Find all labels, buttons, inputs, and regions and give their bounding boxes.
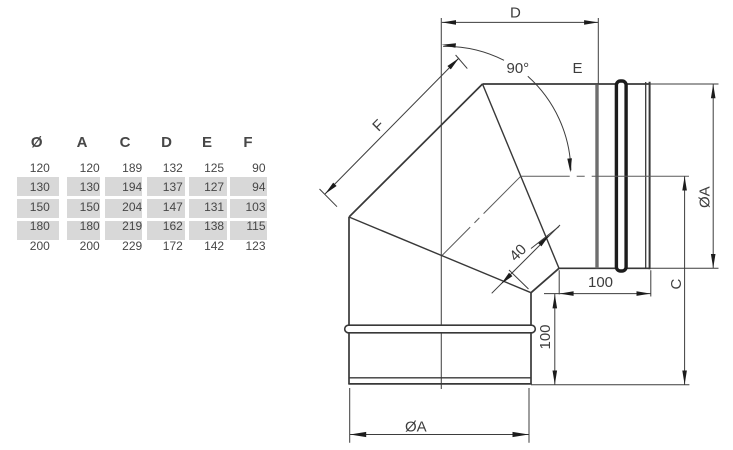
svg-text:ØA: ØA: [697, 186, 714, 208]
svg-text:E: E: [573, 60, 583, 77]
svg-text:100: 100: [537, 324, 554, 349]
svg-text:C: C: [668, 279, 685, 290]
svg-text:ØA: ØA: [405, 419, 427, 436]
svg-text:40: 40: [506, 241, 530, 265]
svg-text:90°: 90°: [507, 60, 530, 77]
svg-text:F: F: [369, 116, 388, 135]
svg-text:100: 100: [588, 274, 613, 291]
svg-text:D: D: [510, 5, 521, 22]
